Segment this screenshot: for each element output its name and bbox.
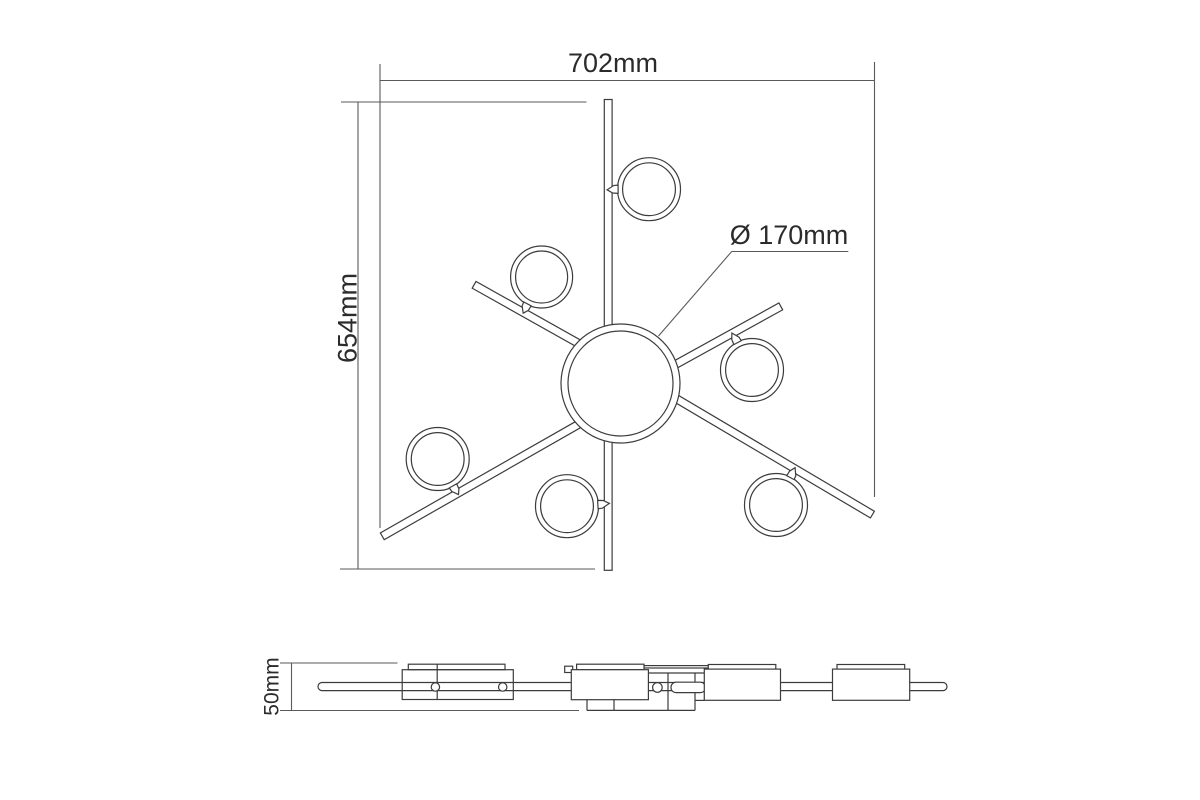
svg-text:50mm: 50mm xyxy=(261,657,284,715)
svg-text:Ø 170mm: Ø 170mm xyxy=(730,220,849,250)
svg-text:654mm: 654mm xyxy=(333,273,363,363)
svg-text:702mm: 702mm xyxy=(568,48,658,78)
